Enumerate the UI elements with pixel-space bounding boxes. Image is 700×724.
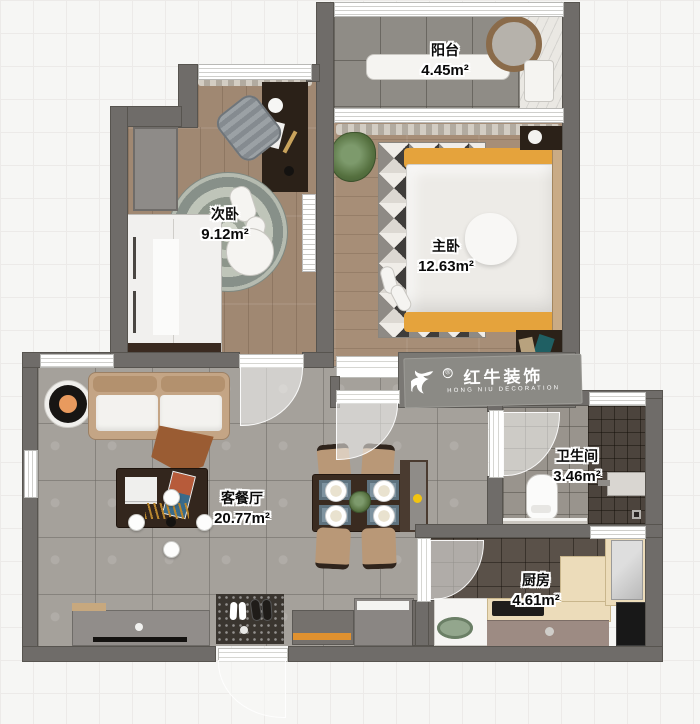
room-label-living-dining: 客餐厅 20.77m²	[192, 488, 292, 530]
bull-icon: ®	[411, 366, 442, 399]
dining-chair	[361, 527, 396, 569]
plate	[325, 505, 347, 527]
room-label-master-bedroom: 主卧 12.63m²	[396, 236, 496, 278]
living-window	[40, 354, 114, 368]
desk-lamp	[268, 98, 283, 113]
table-lamp	[528, 130, 542, 144]
entry-door-swing	[218, 660, 286, 718]
floor-plan-canvas: { "rooms": [ {"name": "阳台", "area": "4.4…	[0, 0, 700, 724]
wall-right-upper	[562, 2, 580, 378]
doormat	[216, 594, 284, 644]
room-name: 次卧	[175, 204, 275, 224]
gold-decor	[145, 503, 189, 519]
living-left-window	[24, 450, 38, 498]
fridge	[611, 540, 643, 600]
room-label-bathroom: 卫生间 3.46m²	[527, 446, 627, 488]
sofa-back-cushion	[93, 376, 157, 392]
black-shoe	[251, 600, 262, 621]
wall-living-left	[22, 352, 38, 662]
balcony-window	[334, 2, 564, 17]
kitchen-door[interactable]	[417, 538, 431, 602]
room-label-second-bedroom: 次卧 9.12m²	[175, 204, 275, 246]
wall-bedroom2-bottom	[110, 352, 240, 368]
plate	[325, 480, 347, 502]
plate	[373, 505, 395, 527]
wardrobe-handle	[133, 291, 136, 333]
room-name: 卫生间	[527, 446, 627, 466]
room-area: 12.63m²	[396, 256, 496, 278]
room-name: 阳台	[395, 40, 495, 60]
room-area: 9.12m²	[175, 224, 275, 246]
sofa-seat-cushion	[96, 395, 158, 431]
chandelier-bulb	[128, 514, 145, 531]
room-name: 客餐厅	[192, 488, 292, 508]
laundry-nook	[434, 598, 488, 646]
bedroom-bench	[336, 356, 400, 378]
bathroom-window	[589, 392, 646, 406]
shoe-cabinet	[292, 610, 354, 645]
wall-bottom	[288, 646, 663, 662]
room-label-balcony: 阳台 4.45m²	[395, 40, 495, 82]
mat-dot	[240, 626, 248, 634]
tv-cabinet	[72, 610, 210, 646]
nightstand	[520, 126, 564, 150]
room-name: 厨房	[486, 570, 586, 590]
wall-balcony-left	[316, 2, 334, 364]
sofa-seat-cushion	[160, 395, 222, 431]
dining-chair	[315, 527, 351, 570]
kitchen-window	[590, 526, 646, 539]
bed-blanket-bottom	[404, 312, 564, 332]
wall-kitchen-left	[415, 600, 429, 646]
wall-bottom	[22, 646, 216, 662]
pencil	[283, 130, 298, 153]
floor-drain	[632, 510, 641, 519]
plate	[373, 480, 395, 502]
white-shoe	[230, 602, 238, 620]
cabinet-knob	[135, 623, 143, 631]
orange-accent	[293, 633, 351, 640]
cabinet-top	[357, 601, 409, 610]
room-area: 20.77m²	[192, 508, 292, 530]
chandelier-bulb	[163, 541, 180, 558]
room-label-kitchen: 厨房 4.61m²	[486, 570, 586, 612]
room-name: 主卧	[396, 236, 496, 256]
wardrobe-base	[125, 343, 221, 352]
balcony-master-window	[334, 108, 564, 123]
wardrobe-handle	[133, 237, 136, 279]
radiator-shelf	[302, 194, 316, 272]
counter-item	[545, 627, 554, 636]
magazine-stack	[125, 477, 157, 501]
entry-cabinet	[354, 598, 414, 646]
dining-table	[312, 474, 406, 532]
room-area: 4.61m²	[486, 590, 586, 612]
room-area: 4.45m²	[395, 60, 495, 82]
hallway-cabinet	[400, 460, 428, 532]
second-bedroom-window	[198, 64, 312, 80]
structural-recess	[133, 127, 178, 211]
chandelier-bulb	[163, 489, 180, 506]
white-shoe	[239, 602, 247, 620]
tv	[93, 637, 187, 642]
chandelier-center	[166, 517, 176, 527]
wall-bedroom2-bottom	[302, 352, 334, 368]
kitchen-lower-counter	[487, 620, 609, 647]
wall-left-upper-vertical	[110, 106, 128, 368]
speaker-turntable	[44, 380, 92, 428]
bathroom-door[interactable]	[489, 410, 504, 478]
brand-name-zh: 红牛装饰	[463, 367, 543, 388]
desk-mouse	[284, 166, 294, 176]
fridge-frame	[605, 534, 649, 606]
brand-logo: ® 红牛装饰 HONG NIU DECORATION	[403, 354, 582, 409]
basin	[437, 617, 473, 639]
cabinet-knob	[413, 494, 422, 503]
balcony-cabinet	[524, 60, 554, 102]
side-shelf	[72, 603, 106, 611]
room-area: 3.46m²	[527, 466, 627, 488]
sofa-back-cushion	[161, 376, 225, 392]
black-shoe	[262, 600, 271, 621]
